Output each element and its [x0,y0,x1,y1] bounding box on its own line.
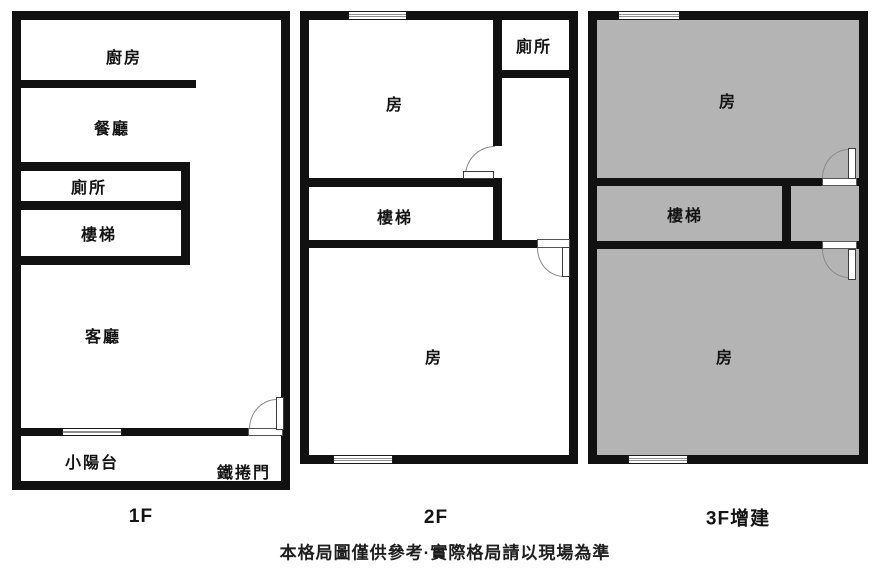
wall [407,11,578,20]
room-label-room-bottom: 房 [425,344,443,368]
room-label-room-top: 房 [719,88,737,112]
room-label-toilet: 廁所 [516,33,552,57]
wall [680,11,868,20]
wall [588,455,628,464]
floor-plan-diagram: 廚房 餐廳 廁所 樓梯 客廳 小陽台 鐵捲門 1F 房 廁所 樓梯 [0,0,889,569]
door-leaf [848,249,856,280]
floor-label-1f: 1F [129,506,153,528]
wall [300,455,333,464]
wall [493,187,502,240]
wall [300,11,309,464]
door-frame [822,241,857,249]
floor-label-3f: 3F增建 [706,504,770,531]
door-frame [822,178,857,186]
wall [588,178,822,186]
door-swing-arc [537,248,564,277]
room-label-roller-door: 鐵捲門 [217,459,271,483]
wall [12,162,190,171]
wall [856,241,868,249]
wall [588,11,597,464]
wall [12,80,196,88]
door-leaf [463,171,494,179]
room-label-room-top: 房 [386,91,404,115]
room-label-room-bottom: 房 [716,344,734,368]
wall [782,186,791,241]
room-label-stairs: 樓梯 [81,221,117,245]
window [618,11,680,20]
room-label-balcony: 小陽台 [65,449,119,473]
room-fill [597,20,859,455]
room-label-stairs: 樓梯 [667,202,703,226]
wall [688,455,868,464]
wall [856,178,868,186]
door-swing-arc [249,399,277,429]
wall [569,11,578,464]
window [628,455,688,464]
wall [588,241,822,249]
disclaimer-note: 本格局圖僅供參考·實際格局請以現場為準 [280,539,611,564]
wall [181,162,190,265]
door-leaf [276,397,284,430]
wall [12,201,190,210]
wall [122,428,248,436]
door-leaf [848,148,856,179]
window [348,11,407,20]
wall [12,11,290,20]
room-label-living: 客廳 [85,323,121,347]
wall [493,70,578,78]
wall [859,11,868,464]
room-label-stairs: 樓梯 [377,204,413,228]
wall [309,240,538,248]
door-leaf [562,247,570,277]
floor-label-2f: 2F [424,507,448,529]
wall [588,11,618,20]
room-label-kitchen: 廚房 [106,44,142,68]
wall [12,428,62,436]
room-label-toilet: 廁所 [71,174,107,198]
wall [12,256,190,265]
window [62,428,122,436]
wall [309,178,502,187]
wall [493,20,502,146]
window [333,455,393,464]
wall [393,455,578,464]
wall [300,11,348,20]
room-label-dining: 餐廳 [94,115,130,139]
